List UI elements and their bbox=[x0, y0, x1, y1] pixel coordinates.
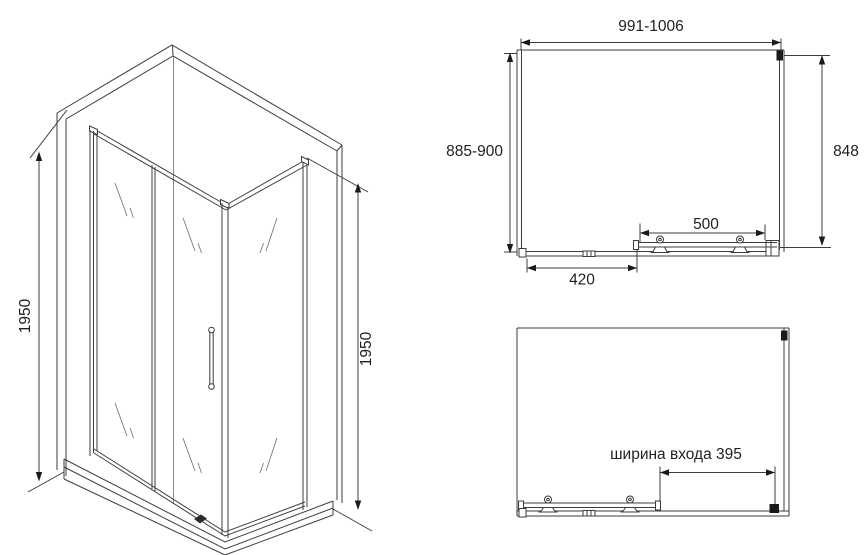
door-roller bbox=[651, 236, 670, 253]
top-frame bbox=[94, 129, 307, 210]
dim-entrance-label: ширина входа 395 bbox=[610, 446, 742, 463]
plan-outline bbox=[517, 50, 784, 256]
dim-side: 848 bbox=[780, 55, 859, 248]
dim-width: 991-1006 bbox=[521, 18, 781, 50]
rail-left-end bbox=[519, 509, 526, 518]
door-roller bbox=[621, 496, 640, 512]
dim-depth: 885-900 bbox=[446, 53, 517, 254]
shower-enclosure-technical-drawing: 1950 1950 bbox=[0, 0, 866, 555]
door-stopper bbox=[770, 504, 780, 513]
door-bottom-guide bbox=[194, 515, 207, 524]
dim-fixed-panel: 420 bbox=[527, 250, 637, 289]
door-roller bbox=[539, 496, 558, 512]
door-handle bbox=[209, 327, 215, 389]
rail-adjuster bbox=[583, 251, 595, 257]
dim-fixed-panel-label: 420 bbox=[569, 272, 595, 289]
dim-height-left-label: 1950 bbox=[17, 298, 34, 333]
door-roller bbox=[731, 236, 750, 253]
plan-view-closed: 991-1006 885-900 848 500 420 bbox=[446, 18, 859, 289]
wall-profile-mark bbox=[777, 51, 784, 61]
open-door-bar bbox=[521, 503, 659, 508]
isometric-view: 1950 1950 bbox=[17, 45, 375, 555]
wall-panels bbox=[57, 45, 342, 503]
dim-height-left: 1950 bbox=[17, 110, 67, 492]
door-end-cap bbox=[656, 501, 661, 510]
wall-profile-mark bbox=[781, 331, 788, 341]
dim-height-right-label: 1950 bbox=[358, 331, 375, 366]
glass-shine-marks bbox=[115, 183, 277, 473]
plan-view-open: ширина входа 395 bbox=[517, 328, 789, 517]
vertical-profiles bbox=[90, 130, 307, 538]
technical-drawing-canvas: 1950 1950 bbox=[0, 0, 866, 555]
rail-adjuster bbox=[583, 511, 595, 517]
sliding-door-bar bbox=[636, 243, 777, 248]
plan-open-outline bbox=[517, 328, 789, 516]
dim-entrance: ширина входа 395 bbox=[610, 446, 775, 504]
dim-door-label: 500 bbox=[693, 216, 719, 233]
rail-left-end bbox=[519, 249, 526, 258]
dim-side-label: 848 bbox=[833, 143, 859, 160]
dim-width-label: 991-1006 bbox=[618, 18, 684, 35]
door-end-cap bbox=[634, 241, 639, 250]
dim-depth-label: 885-900 bbox=[446, 143, 503, 160]
dim-height-right: 1950 bbox=[307, 158, 375, 531]
